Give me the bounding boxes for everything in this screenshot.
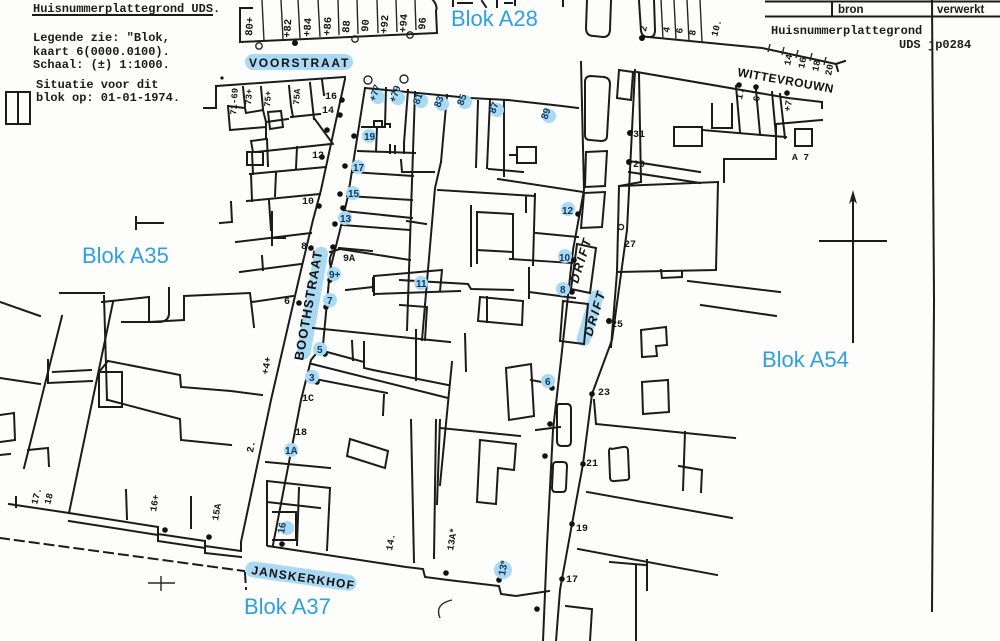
svg-text:10: 10 (559, 253, 571, 264)
svg-text:13: 13 (340, 214, 352, 225)
svg-text:+4+: +4+ (261, 356, 275, 376)
svg-text:jp0284: jp0284 (928, 38, 971, 52)
svg-text:19: 19 (576, 524, 588, 535)
svg-text:5: 5 (317, 345, 323, 356)
svg-text:+7: +7 (782, 99, 795, 112)
svg-text:9+: 9+ (329, 270, 341, 281)
svg-text:1.: 1. (734, 87, 747, 100)
svg-text:bron: bron (838, 4, 864, 16)
svg-text:12: 12 (562, 206, 574, 217)
svg-text:A 7: A 7 (792, 152, 809, 163)
svg-text:Legende zie: "Blok,: Legende zie: "Blok, (33, 31, 170, 45)
svg-text:12: 12 (312, 151, 324, 162)
svg-text:Blok A35: Blok A35 (82, 243, 169, 268)
svg-text:16+: 16+ (148, 493, 162, 512)
svg-text:7: 7 (327, 296, 333, 307)
svg-text:10: 10 (302, 197, 314, 208)
svg-text:17: 17 (353, 163, 365, 174)
svg-text:6: 6 (751, 95, 763, 103)
svg-text:17: 17 (566, 575, 578, 586)
svg-text:29: 29 (633, 160, 645, 171)
svg-text:JANSKERKHOF: JANSKERKHOF (251, 563, 356, 592)
svg-text:15A: 15A (210, 502, 224, 521)
svg-text:VOORSTRAAT: VOORSTRAAT (249, 56, 350, 70)
svg-text:18: 18 (42, 492, 56, 506)
svg-text:88: 88 (341, 20, 354, 33)
svg-text:6: 6 (674, 27, 686, 35)
svg-text:27: 27 (624, 240, 636, 251)
svg-text:Blok A54: Blok A54 (762, 347, 849, 372)
svg-text:blok op: 01-01-1974.: blok op: 01-01-1974. (36, 91, 180, 105)
svg-text:Situatie voor dit: Situatie voor dit (36, 78, 158, 92)
svg-text:10.: 10. (709, 18, 724, 37)
svg-text:Huisnummerplattegrond: Huisnummerplattegrond (771, 24, 922, 38)
svg-text:+94: +94 (398, 14, 411, 34)
svg-text:25: 25 (611, 320, 623, 331)
svg-text:8: 8 (687, 29, 699, 37)
svg-text:+82: +82 (282, 19, 295, 39)
svg-text:UDS: UDS (899, 38, 921, 52)
svg-text:verwerkt: verwerkt (937, 4, 984, 16)
svg-text:Blok A37: Blok A37 (244, 594, 331, 619)
svg-text:8: 8 (560, 285, 566, 296)
svg-text:4: 4 (661, 26, 673, 34)
svg-text:Blok A28: Blok A28 (451, 6, 538, 31)
svg-text:Schaal: (±) 1:1000.: Schaal: (±) 1:1000. (33, 58, 170, 72)
svg-text:2: 2 (638, 25, 650, 33)
svg-text:1C: 1C (302, 394, 314, 405)
svg-text:20: 20 (823, 63, 836, 77)
svg-text:2.: 2. (246, 440, 259, 454)
svg-text:18: 18 (295, 428, 307, 439)
svg-text:80+: 80+ (244, 17, 257, 37)
svg-text:14: 14 (322, 106, 334, 117)
svg-text:19: 19 (364, 132, 376, 143)
svg-text:kaart 6(0000.0100).: kaart 6(0000.0100). (33, 45, 170, 59)
svg-text:13A*: 13A* (445, 527, 460, 551)
svg-text:96: 96 (417, 17, 430, 30)
svg-text:9A: 9A (343, 254, 355, 265)
svg-text:31: 31 (633, 130, 645, 141)
svg-text:15: 15 (348, 189, 360, 200)
svg-text:6: 6 (284, 297, 290, 308)
svg-text:90: 90 (360, 19, 373, 32)
svg-text:23: 23 (598, 388, 610, 399)
svg-text:21: 21 (586, 459, 598, 470)
svg-text:+86: +86 (322, 17, 335, 37)
svg-text:1A: 1A (285, 446, 298, 457)
svg-text:+84: +84 (302, 18, 315, 38)
svg-text:14.: 14. (384, 533, 398, 552)
svg-text:71-69: 71-69 (229, 88, 241, 116)
svg-text:75+: 75+ (263, 90, 274, 107)
svg-text:16: 16 (325, 92, 337, 103)
svg-text:73+: 73+ (244, 88, 255, 105)
svg-text:+92: +92 (379, 15, 392, 35)
svg-text:8: 8 (301, 242, 307, 253)
svg-text:Huisnummerplattegrond UDS.: Huisnummerplattegrond UDS. (33, 2, 220, 16)
svg-text:3: 3 (309, 373, 315, 384)
svg-text:75A: 75A (292, 88, 303, 105)
svg-text:6: 6 (545, 377, 551, 388)
svg-text:11: 11 (416, 279, 427, 290)
